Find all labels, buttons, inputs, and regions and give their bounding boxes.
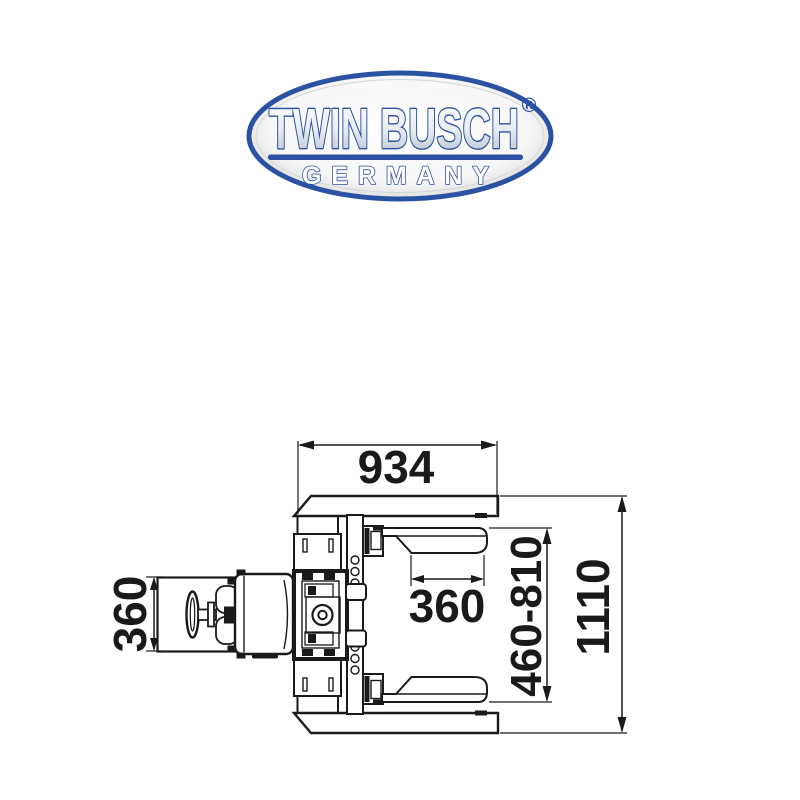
dim-label-1110: 1110 (567, 558, 619, 655)
motor-top-bolt (237, 570, 246, 576)
dim-label-460-810: 460-810 (502, 535, 551, 696)
upper-swing-arm (363, 526, 487, 556)
motor-foot (252, 653, 278, 659)
drive-unit (158, 570, 294, 659)
frame-top-leg (294, 496, 498, 516)
column-lower-section (294, 659, 341, 713)
dimension-360-pad-width: 360 (409, 555, 486, 632)
registered-trademark-icon: ® (522, 95, 537, 117)
dim-label-360-pad: 360 (409, 580, 486, 632)
arm-pivot-upper (346, 584, 366, 600)
motor-bottom-bolt (237, 653, 246, 659)
lower-arm-pad (382, 677, 487, 702)
arrowhead-left-icon (298, 441, 314, 450)
top-leg-foot (475, 513, 487, 518)
arm-mounting-plate (347, 515, 363, 714)
lower-swing-arm (363, 674, 487, 704)
logo-country-text: GERMANY (302, 162, 494, 190)
logo-underline (268, 155, 523, 161)
dim-label-934: 934 (358, 441, 435, 493)
arrowhead-right-icon (481, 441, 497, 450)
bottom-leg-foot (475, 711, 487, 716)
dimension-360-housing-width: 360 (104, 576, 162, 653)
frame-bottom-leg (294, 713, 498, 733)
dim-label-360-housing: 360 (104, 576, 156, 653)
upper-arm-pad (382, 528, 487, 553)
twin-busch-logo: TWIN BUSCH ® GERMANY (249, 73, 551, 199)
arrowhead-down-icon (618, 717, 627, 733)
logo-brand-text: TWIN BUSCH (269, 97, 519, 161)
page: TWIN BUSCH ® GERMANY (0, 0, 800, 800)
dimension-460-810-arm-span: 460-810 (489, 528, 552, 702)
arrowhead-up-icon (618, 496, 627, 512)
technical-drawing-canvas: TWIN BUSCH ® GERMANY (0, 0, 800, 800)
arm-pivot-lower (346, 631, 366, 647)
column-upper-section (294, 516, 341, 571)
